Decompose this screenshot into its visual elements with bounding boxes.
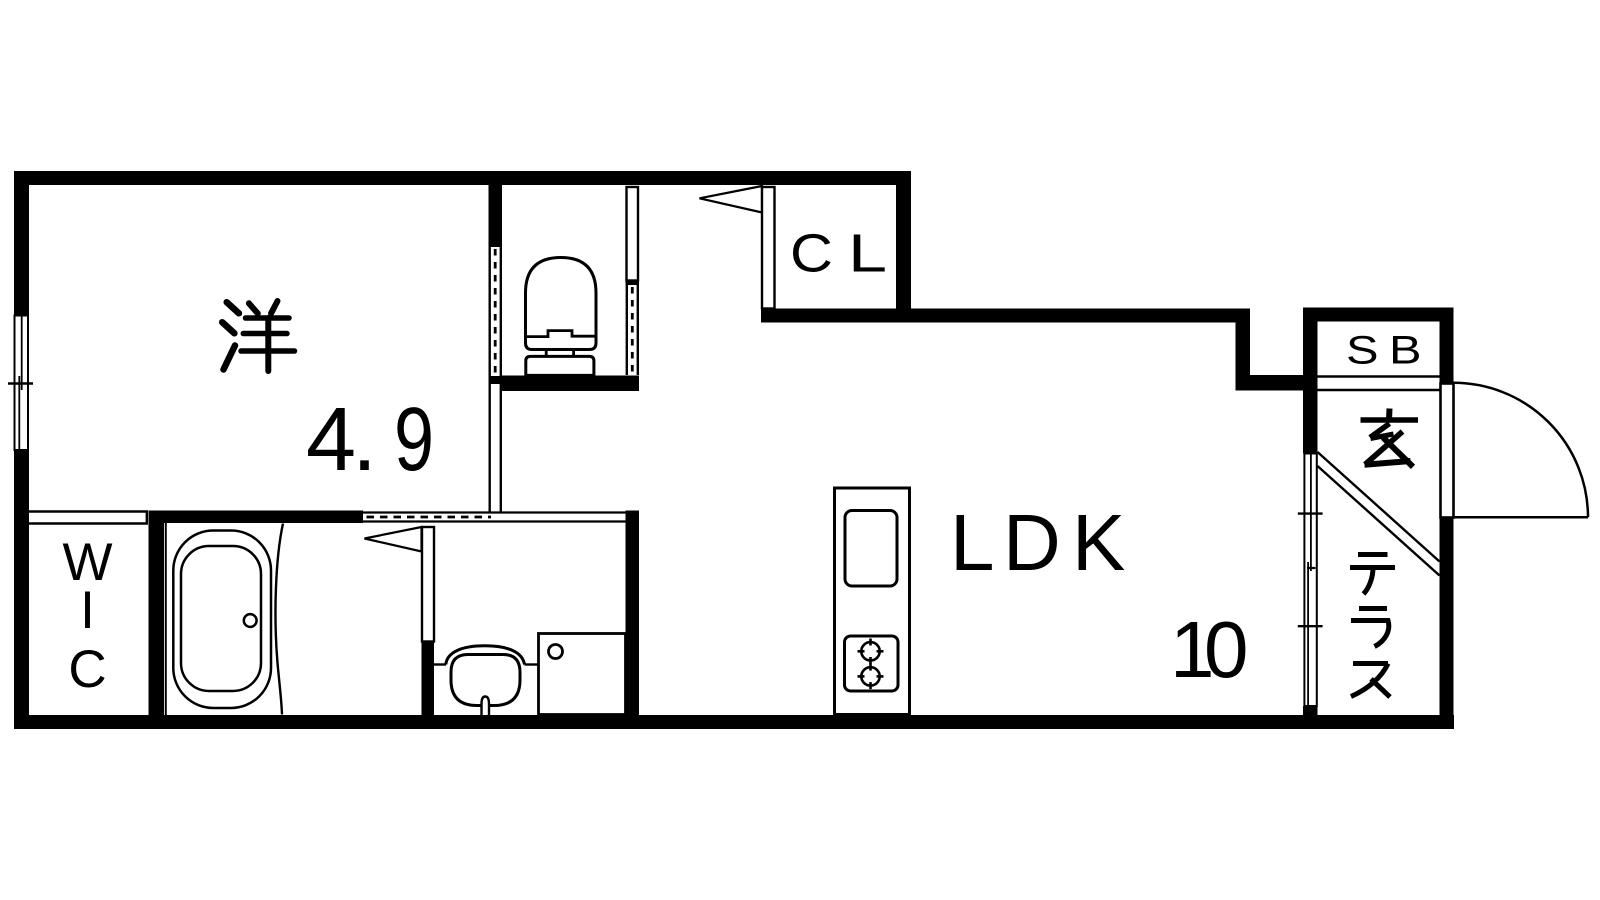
svg-text:L: L bbox=[848, 223, 887, 283]
svg-text:L: L bbox=[950, 498, 995, 587]
svg-text:I: I bbox=[80, 581, 95, 640]
svg-text:S: S bbox=[1346, 329, 1379, 373]
svg-text:K: K bbox=[1072, 498, 1125, 587]
svg-text:.: . bbox=[352, 390, 377, 490]
svg-text:4: 4 bbox=[306, 390, 356, 490]
svg-text:C: C bbox=[68, 640, 106, 699]
svg-text:9: 9 bbox=[394, 389, 434, 489]
svg-text:D: D bbox=[1003, 498, 1061, 587]
svg-text:C: C bbox=[790, 224, 833, 284]
svg-text:0: 0 bbox=[1204, 605, 1249, 694]
svg-text:B: B bbox=[1389, 329, 1422, 373]
